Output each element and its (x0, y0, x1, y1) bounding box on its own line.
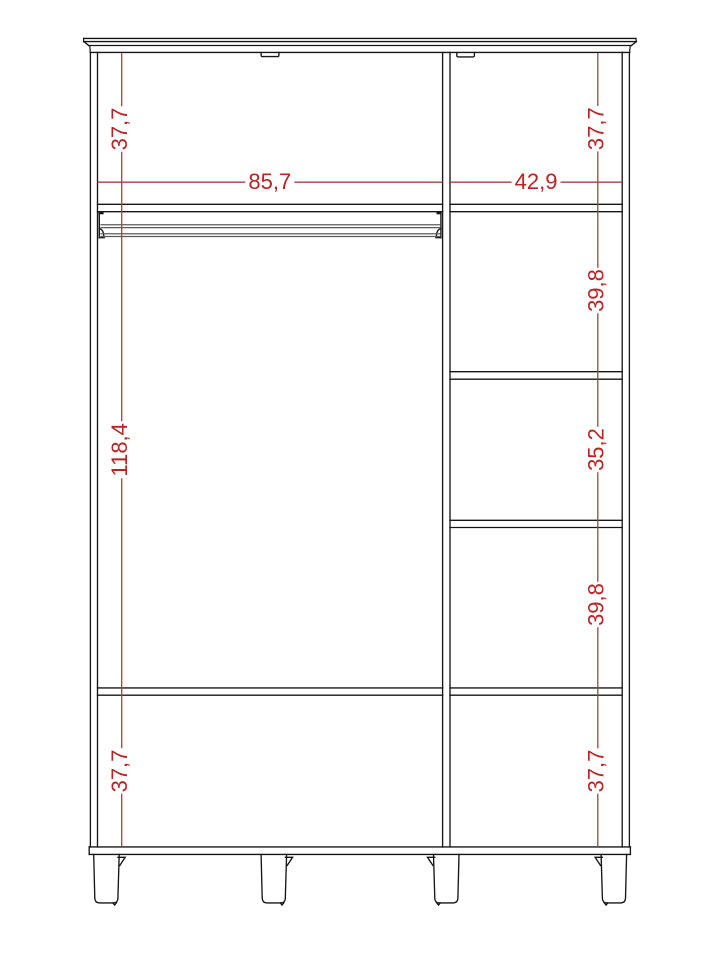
svg-text:37,7: 37,7 (107, 108, 132, 151)
svg-text:85,7: 85,7 (248, 169, 291, 194)
svg-text:35,2: 35,2 (583, 428, 608, 471)
svg-text:39,8: 39,8 (583, 583, 608, 626)
svg-text:37,7: 37,7 (107, 750, 132, 793)
svg-text:39,8: 39,8 (583, 269, 608, 312)
svg-text:37,7: 37,7 (583, 107, 608, 150)
svg-text:42,9: 42,9 (515, 169, 558, 194)
svg-text:37,7: 37,7 (583, 750, 608, 793)
svg-text:118,4: 118,4 (107, 423, 132, 476)
